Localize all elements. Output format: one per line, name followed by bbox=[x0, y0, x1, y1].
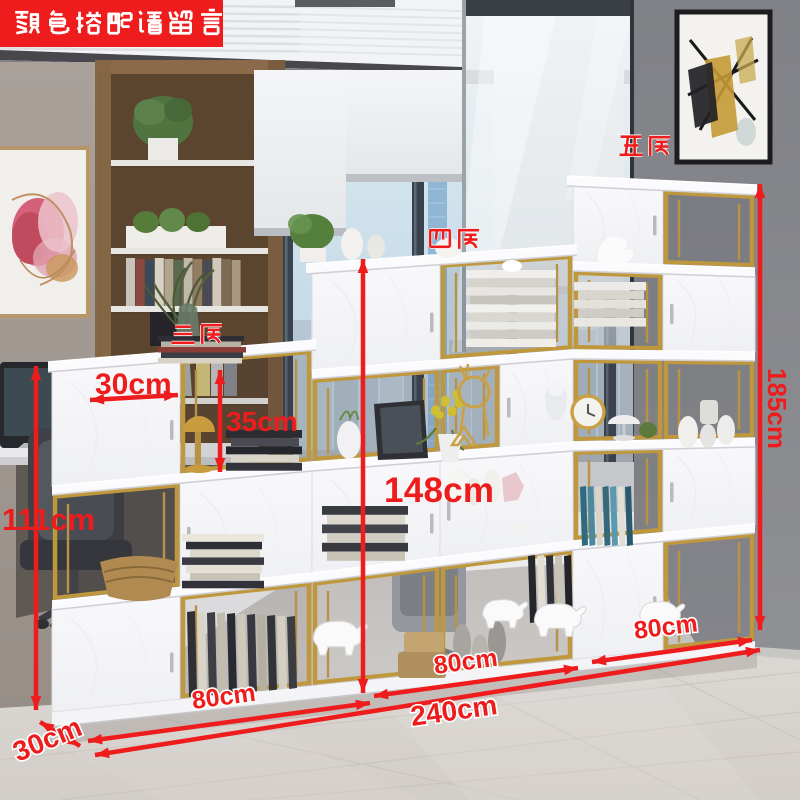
svg-text:111cm: 111cm bbox=[2, 502, 95, 537]
svg-text:148cm: 148cm bbox=[384, 471, 494, 510]
svg-text:30cm: 30cm bbox=[95, 368, 172, 401]
svg-text:185cm: 185cm bbox=[762, 368, 792, 449]
svg-text:35cm: 35cm bbox=[226, 406, 298, 437]
